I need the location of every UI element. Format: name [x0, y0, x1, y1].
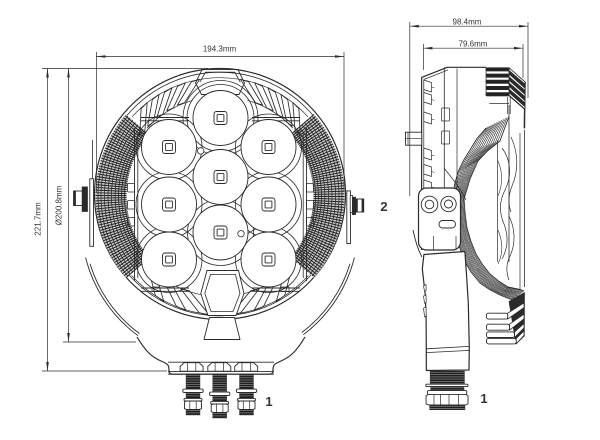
- svg-text:221.7mm: 221.7mm: [34, 202, 43, 236]
- svg-text:194.3mm: 194.3mm: [203, 45, 237, 54]
- svg-text:98.4mm: 98.4mm: [453, 18, 482, 27]
- svg-text:1: 1: [265, 394, 272, 409]
- svg-text:79.6mm: 79.6mm: [459, 40, 488, 49]
- svg-text:2: 2: [380, 199, 387, 214]
- svg-text:1: 1: [480, 391, 487, 406]
- svg-text:Ø200.8mm: Ø200.8mm: [55, 185, 64, 225]
